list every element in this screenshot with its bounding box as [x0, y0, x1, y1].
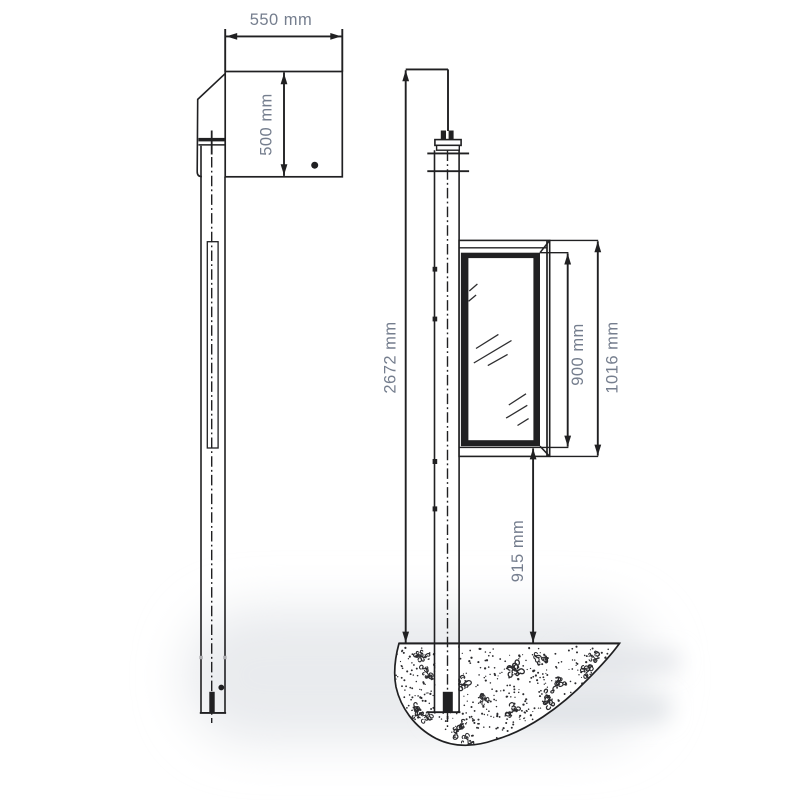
svg-text:2672 mm: 2672 mm	[382, 321, 400, 393]
svg-text:500 mm: 500 mm	[258, 93, 276, 156]
svg-text:900 mm: 900 mm	[569, 323, 587, 386]
svg-text:550 mm: 550 mm	[250, 11, 313, 29]
svg-text:1016 mm: 1016 mm	[603, 321, 621, 393]
svg-text:915 mm: 915 mm	[509, 520, 527, 583]
